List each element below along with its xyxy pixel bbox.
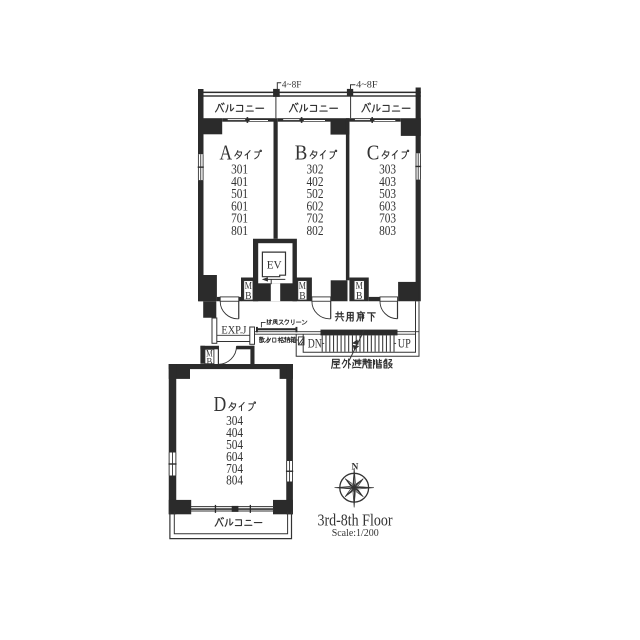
svg-text:EV: EV <box>267 258 282 272</box>
svg-text:4~8F: 4~8F <box>282 81 302 91</box>
svg-text:804: 804 <box>226 474 243 489</box>
svg-text:B: B <box>295 140 308 164</box>
svg-text:B: B <box>299 290 305 302</box>
svg-text:4~8F: 4~8F <box>356 81 378 91</box>
svg-text:EXP.J: EXP.J <box>221 322 246 336</box>
svg-text:802: 802 <box>307 224 324 239</box>
svg-text:B: B <box>245 290 251 302</box>
svg-text:UP: UP <box>398 337 411 351</box>
svg-text:DN: DN <box>308 336 322 350</box>
svg-text:D: D <box>214 392 227 416</box>
svg-text:803: 803 <box>379 224 396 239</box>
svg-text:Scale:1/200: Scale:1/200 <box>332 527 379 539</box>
svg-text:B: B <box>356 290 362 302</box>
svg-text:801: 801 <box>231 224 248 239</box>
svg-text:A: A <box>220 140 233 164</box>
svg-text:C: C <box>367 140 380 164</box>
svg-text:N: N <box>351 463 358 473</box>
